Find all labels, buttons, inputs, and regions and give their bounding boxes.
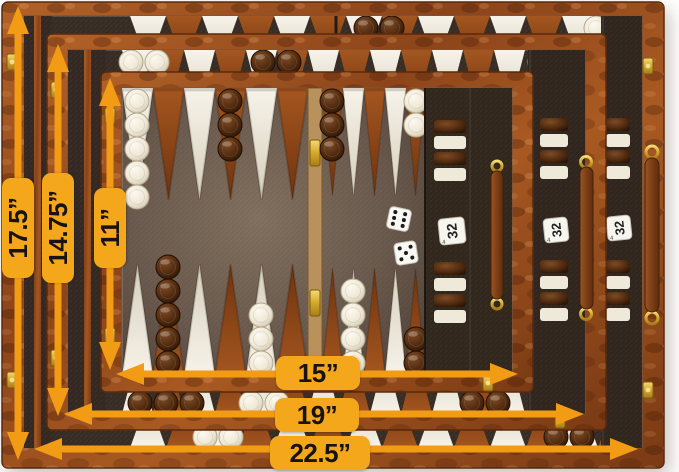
medium-storage: 32 4 xyxy=(528,50,585,414)
latch-icon xyxy=(643,58,653,74)
dimension-label-medium-height: 14.75” xyxy=(42,173,74,283)
latch-icon xyxy=(643,382,653,398)
small-hinge-bar xyxy=(308,88,322,376)
cube-value: 32 xyxy=(443,222,461,239)
dimension-label-small-height: 11” xyxy=(94,188,126,268)
medium-handle xyxy=(580,157,593,320)
dimension-label-large-width: 22.5” xyxy=(270,436,370,470)
cube-value: 32 xyxy=(611,220,627,236)
dimension-label-small-width: 15” xyxy=(276,356,360,390)
doubling-cube-large: 32 4 xyxy=(606,215,632,242)
large-left-divider xyxy=(34,16,41,448)
doubling-cube-medium: 32 4 xyxy=(543,217,569,244)
die-six xyxy=(386,206,412,232)
backgammon-product-image: 32 4 xyxy=(0,0,679,472)
dimension-label-medium-width: 19” xyxy=(275,398,359,432)
large-handle xyxy=(645,146,659,324)
small-handle xyxy=(491,161,503,309)
die-five xyxy=(393,240,418,265)
large-storage: 32 4 xyxy=(601,16,642,448)
dimension-label-large-height: 17.5” xyxy=(2,178,34,278)
medium-left-divider xyxy=(84,50,91,414)
board-small: 32 4 xyxy=(101,72,533,392)
doubling-cube-small: 32 4 xyxy=(438,217,467,247)
cube-value: 32 xyxy=(548,222,564,238)
